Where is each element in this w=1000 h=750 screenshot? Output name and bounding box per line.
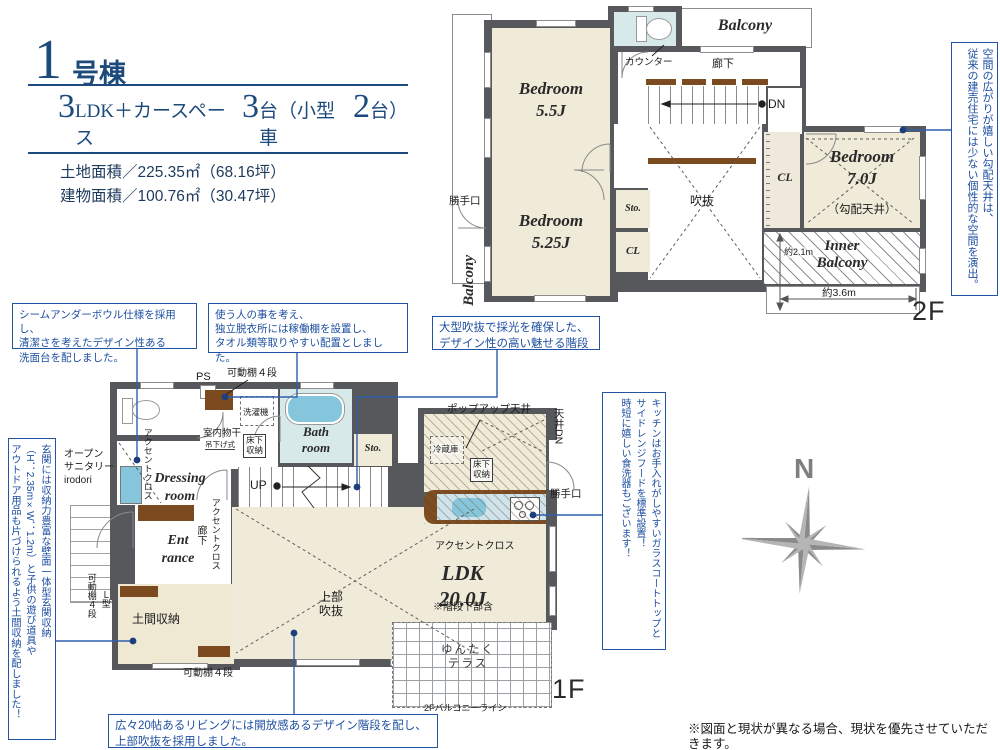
terrace-label: ゆんたく テラス xyxy=(430,644,506,672)
void-label-2f: 吹抜 xyxy=(690,194,714,208)
land-area: 土地面積／225.35㎡（68.16坪） xyxy=(28,154,408,182)
balcony-left-label: Balcony xyxy=(460,255,480,306)
open-sanitary-label: オープン サニタリー irodori xyxy=(64,448,114,487)
storage-label-2f: Sto. xyxy=(616,202,650,215)
callout-sloped-ceiling: 空間の広がりが嬉しい勾配天井は、 従来の建売住宅には少ない個性的な空間を演出。 xyxy=(951,42,998,296)
building-number: 1 xyxy=(34,28,62,92)
doma-shelf-bottom xyxy=(198,646,230,657)
toilet-fixture-2f xyxy=(646,18,672,40)
shoe-cabinet xyxy=(138,505,194,521)
callout-washstand: シームアンダーボウル仕様を採用し、 清潔さを考えたデザイン性ある 洗面台を配しま… xyxy=(12,303,197,349)
hanging-type-label: 吊下げ式 xyxy=(205,440,235,450)
building-suffix: 号棟 xyxy=(72,52,126,91)
popup-ceiling-label: ポップアップ天井 xyxy=(447,403,531,416)
closet-mid-label: CL xyxy=(616,244,650,258)
doma-shelf-left xyxy=(120,586,158,597)
void-beam xyxy=(648,158,756,164)
laundry-shelf xyxy=(205,390,233,410)
accent-cloth-ldk: アクセントクロス xyxy=(435,541,515,553)
shelf-top-label: 可動棚４段 xyxy=(227,368,277,380)
bedroom-5-5-label: Bedroom 5.5J xyxy=(492,78,610,122)
dim-2-1m: 約2.1m xyxy=(784,247,813,258)
up-label: UP xyxy=(250,478,267,492)
bedroom-5-25-label: Bedroom 5.25J xyxy=(492,210,610,254)
washer-label: 洗濯機 xyxy=(243,407,269,417)
spec-num3: 2 xyxy=(353,88,370,126)
toilet-fixture-1f xyxy=(132,400,160,420)
bathroom-label: Bath room xyxy=(280,424,352,455)
building-area: 建物面積／100.76㎡（30.47坪） xyxy=(28,182,408,206)
callout-shelf: 使う人の事を考え、 独立脱衣所には稼働棚を設置し、 タオル類等取りやすい配置とし… xyxy=(208,303,408,353)
ps-label: PS xyxy=(196,371,211,384)
callout-living: 広々20帖あるリビングには開放感あるデザイン階段を配し、 上部吹抜を採用しました… xyxy=(108,714,438,748)
callout-staircase: 大型吹抜で採光を確保した、 デザイン性の高い魅せる階段 xyxy=(432,316,600,350)
storage-1f-label: Sto. xyxy=(354,442,392,456)
dn-label: DN xyxy=(768,97,785,111)
shelf-left-label: 可動棚４段 xyxy=(86,573,97,618)
balcony-line-label: 2Fバルコニーライン xyxy=(424,703,506,714)
spec-num1: 3 xyxy=(58,88,75,126)
corridor-label-2f: 廊下 xyxy=(712,58,734,71)
balcony-top-label: Balcony xyxy=(700,16,790,37)
sloped-ceiling-label: （勾配天井） xyxy=(806,204,918,218)
upper-void-label: 上部 吹抜 xyxy=(306,590,356,619)
floor-label-2f: 2F xyxy=(912,296,946,327)
counter-label-2f: カウンター xyxy=(625,57,673,68)
spec-num2: 3 xyxy=(242,88,259,126)
callout-kitchen: キッチンはお手入れがしやすいガラスコートトップと サイドレンジフードを標準設置！… xyxy=(602,392,666,650)
disclaimer-text: ※図面と現状が異なる場合、現状を優先させていただきます。 xyxy=(688,722,1000,750)
spec-text2: 台（小型車 xyxy=(259,96,353,150)
closet-right-label: CL xyxy=(770,170,800,186)
floor-label-1f: 1F xyxy=(552,674,586,705)
backdoor-label-2f: 勝手口 xyxy=(449,195,481,208)
underfloor-kitchen-label: 床下 収納 xyxy=(470,458,493,482)
floorplan-sheet: 1 号棟 3 LDK＋カースペース 3 台（小型車 2 台） 土地面積／225.… xyxy=(0,0,1000,750)
corridor-label-1f: 廊下 xyxy=(194,525,206,545)
indoor-drying-label: 室内物干 xyxy=(203,428,241,439)
title-block: 1 号棟 3 LDK＋カースペース 3 台（小型車 2 台） 土地面積／225.… xyxy=(28,34,408,206)
bedroom-7-label: Bedroom 7.0J xyxy=(806,146,918,190)
backdoor-label-1f: 勝手口 xyxy=(550,488,582,501)
dim-3-6m: 約3.6m xyxy=(822,287,856,300)
doma-label: 土間収納 xyxy=(132,612,180,626)
fridge-label: 冷蔵庫 xyxy=(433,444,459,454)
ldk-note-label: ※階段下部含 xyxy=(433,602,493,614)
bathtub xyxy=(286,394,344,424)
shelf-bottom-label: 可動棚４段 xyxy=(183,668,233,680)
compass-n-text: N xyxy=(794,452,814,486)
ceiling-dn-label: 天井DN xyxy=(552,408,565,444)
callout-entrance-storage: 玄関には収納力豊富な壁面一体型玄関収納 （H：2.35m×W：1.2m）と子供の… xyxy=(8,438,56,740)
spec-text3: 台） xyxy=(370,96,408,123)
accent-cloth-hall: アクセントクロス xyxy=(210,498,221,570)
underfloor-wash-label: 床下 収納 xyxy=(243,434,266,458)
entrance-label: Ent rance xyxy=(138,532,218,567)
l-type-label: Ｌ型 xyxy=(100,590,111,608)
spec-line: 3 LDK＋カースペース 3 台（小型車 2 台） xyxy=(28,86,408,152)
spec-text1: LDK＋カースペース xyxy=(75,96,242,150)
stairs-2f xyxy=(648,86,766,124)
